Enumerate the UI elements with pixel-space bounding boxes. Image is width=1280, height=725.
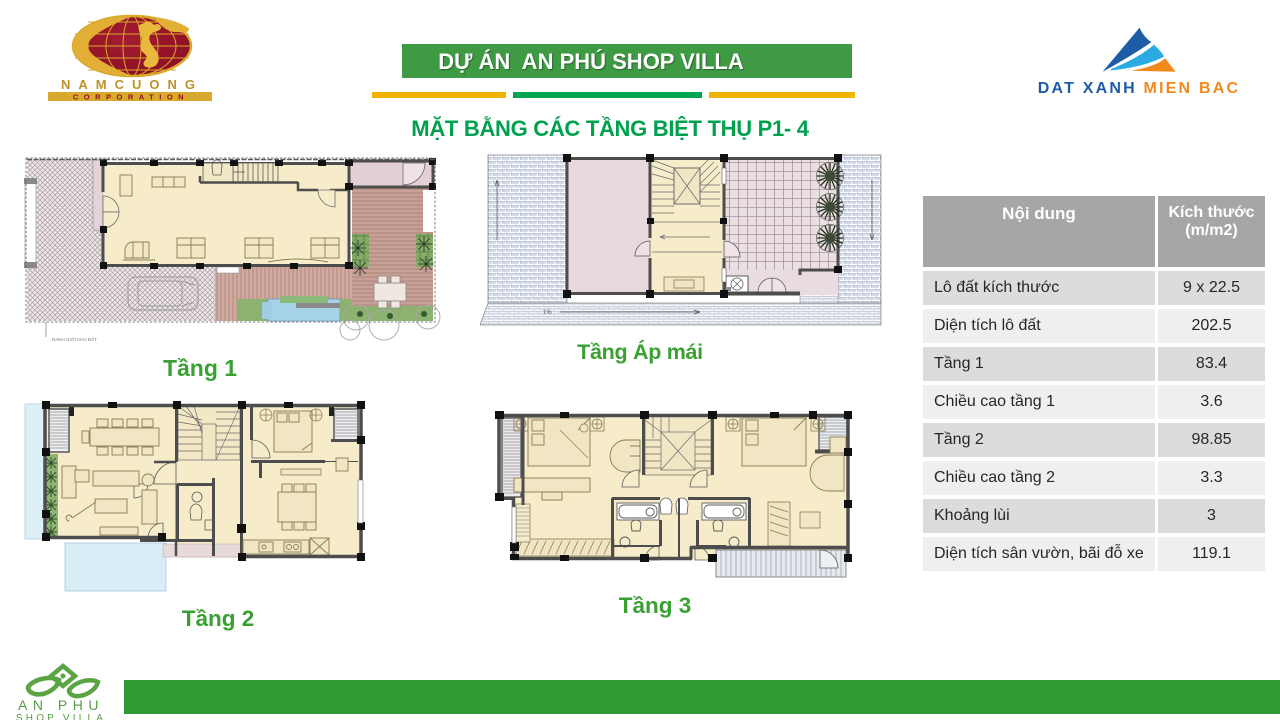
svg-text:DAT XANH MIEN BAC: DAT XANH MIEN BAC xyxy=(1038,80,1240,97)
svg-text:RANH GIỚI KHU ĐẤT: RANH GIỚI KHU ĐẤT xyxy=(52,336,97,342)
svg-text:SHOP VILLA: SHOP VILLA xyxy=(16,713,106,720)
svg-text:AN PHU: AN PHU xyxy=(18,697,104,713)
svg-text:CORPORATION: CORPORATION xyxy=(73,93,189,102)
svg-text:1%: 1% xyxy=(543,310,552,316)
svg-text:NAMCUONG: NAMCUONG xyxy=(61,77,203,92)
